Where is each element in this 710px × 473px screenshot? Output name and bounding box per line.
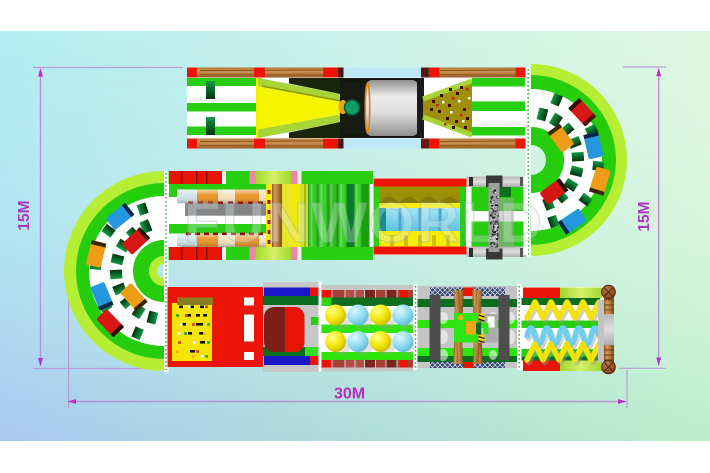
svg-text:15M: 15M [16,200,33,230]
svg-text:FUNWORLD: FUNWORLD [184,191,544,255]
svg-text:15M: 15M [636,201,653,231]
svg-text:30M: 30M [334,386,365,403]
